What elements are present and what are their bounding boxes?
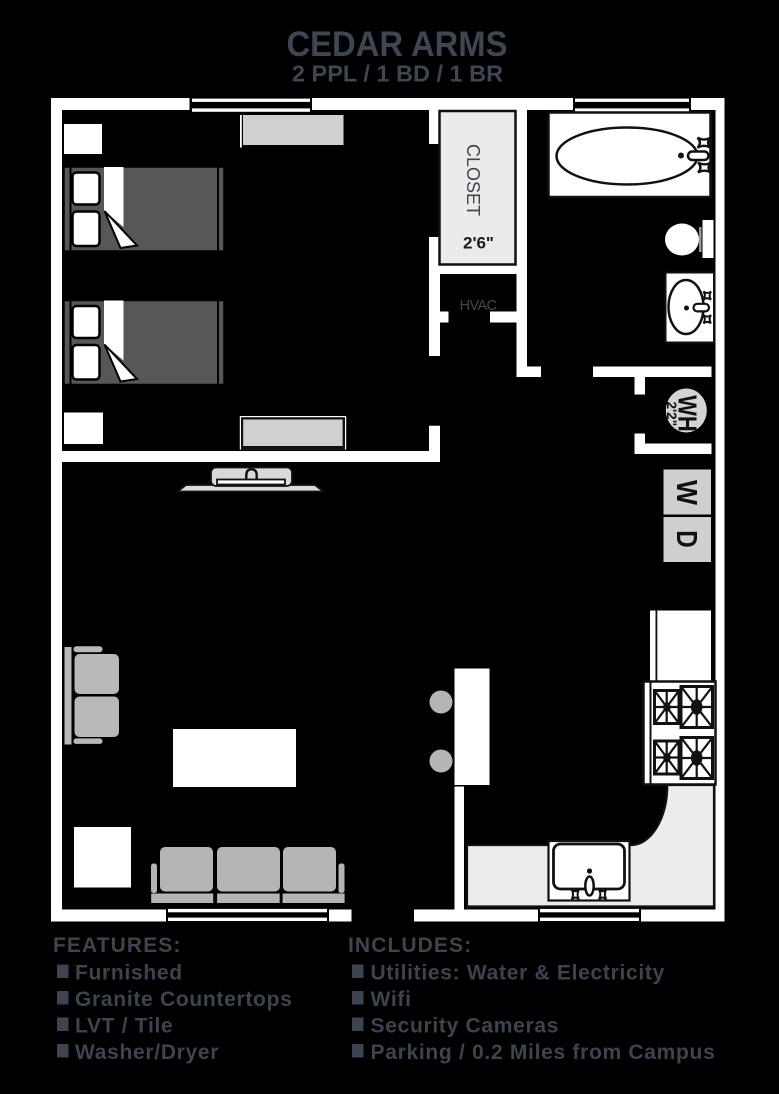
svg-text:2'6": 2'6"	[463, 234, 494, 253]
svg-text:Wifi: Wifi	[371, 988, 412, 1011]
svg-text:Security Cameras: Security Cameras	[371, 1015, 560, 1038]
svg-text:Parking / 0.2 Miles from Campu: Parking / 0.2 Miles from Campus	[371, 1041, 716, 1064]
svg-text:Granite Countertops: Granite Countertops	[75, 988, 292, 1011]
svg-text:Washer/Dryer: Washer/Dryer	[75, 1041, 219, 1064]
svg-text:INCLUDES:: INCLUDES:	[348, 934, 472, 957]
svg-text:FEATURES:: FEATURES:	[53, 934, 182, 957]
svg-text:CLOSET: CLOSET	[463, 144, 483, 216]
svg-text:W: W	[670, 480, 702, 505]
svg-text:HVAC: HVAC	[460, 298, 497, 314]
svg-text:Utilities: Water & Electricity: Utilities: Water & Electricity	[371, 962, 665, 985]
svg-text:D: D	[670, 530, 702, 548]
svg-text:2'2": 2'2"	[664, 401, 679, 426]
svg-text:2 PPL / 1 BD / 1 BR: 2 PPL / 1 BD / 1 BR	[292, 61, 503, 87]
svg-text:LVT / Tile: LVT / Tile	[75, 1015, 173, 1038]
svg-text:CEDAR ARMS: CEDAR ARMS	[287, 25, 508, 64]
svg-text:Furnished: Furnished	[75, 962, 183, 985]
